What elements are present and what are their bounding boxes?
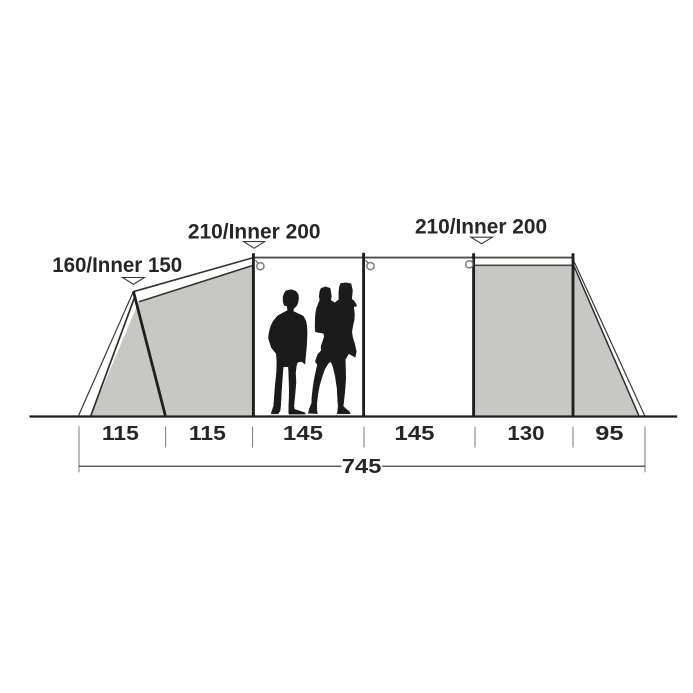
svg-text:115: 115 [102,423,139,445]
svg-text:145: 145 [283,423,323,445]
svg-text:160/Inner 150: 160/Inner 150 [52,253,182,277]
svg-text:210/Inner 200: 210/Inner 200 [188,219,321,243]
svg-text:745: 745 [342,456,382,478]
svg-text:130: 130 [507,423,544,445]
svg-text:95: 95 [595,423,623,445]
svg-text:145: 145 [394,423,434,445]
svg-text:115: 115 [189,423,226,445]
svg-text:210/Inner 200: 210/Inner 200 [415,215,547,239]
